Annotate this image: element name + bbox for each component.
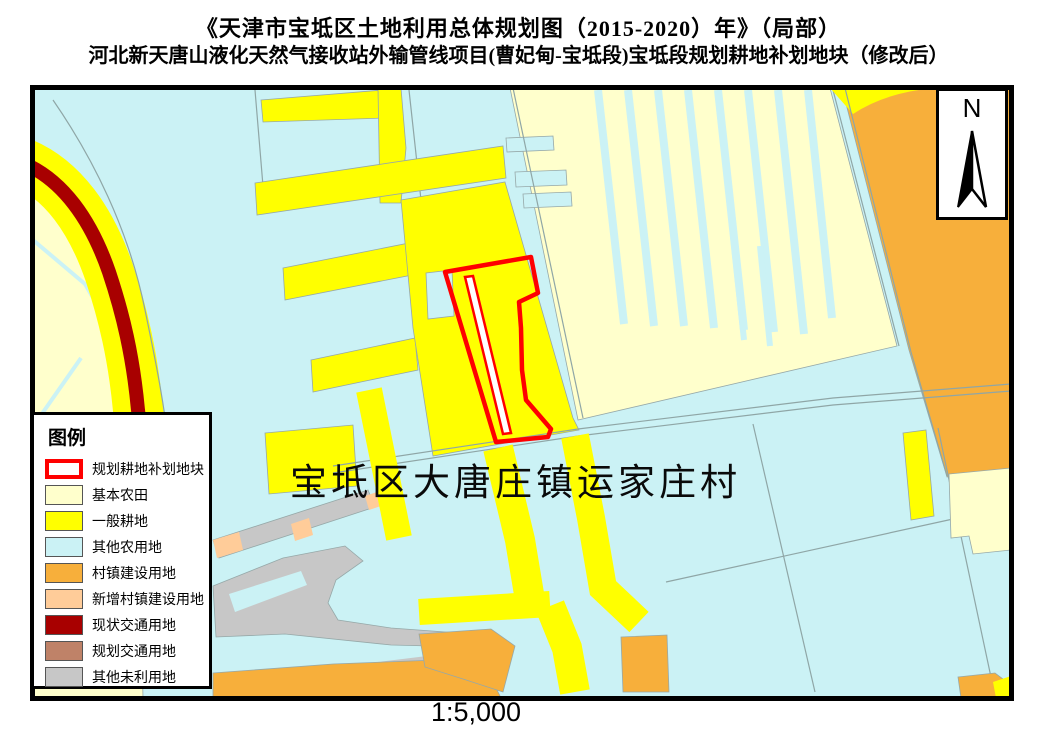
map-title-line2: 河北新天唐山液化天然气接收站外输管线项目(曹妃甸-宝坻段)宝坻段规划耕地补划地块… bbox=[0, 44, 1037, 68]
legend-swatch bbox=[45, 589, 83, 609]
legend-item: 现状交通用地 bbox=[34, 612, 209, 638]
legend-swatch bbox=[45, 485, 83, 505]
map-sheet: 《天津市宝坻区土地利用总体规划图（2015-2020）年》（局部） 河北新天唐山… bbox=[0, 0, 1037, 733]
legend-item-label: 规划交通用地 bbox=[92, 641, 176, 661]
legend-swatch bbox=[45, 511, 83, 531]
map-title-line1: 《天津市宝坻区土地利用总体规划图（2015-2020）年》（局部） bbox=[0, 16, 1037, 42]
legend-item: 一般耕地 bbox=[34, 508, 209, 534]
legend-item-label: 新增村镇建设用地 bbox=[92, 589, 204, 609]
legend-item-label: 村镇建设用地 bbox=[92, 563, 176, 583]
scale-text: 1:5,000 bbox=[0, 697, 952, 728]
legend-rows: 规划耕地补划地块 基本农田 一般耕地 其他农用地 村镇建设用地 新增村镇建设用地… bbox=[34, 456, 209, 690]
legend-item-label: 一般耕地 bbox=[92, 511, 148, 531]
legend-swatch bbox=[45, 459, 83, 479]
north-arrow-box: N bbox=[936, 88, 1008, 220]
legend-item: 村镇建设用地 bbox=[34, 560, 209, 586]
legend-item: 规划交通用地 bbox=[34, 638, 209, 664]
legend-item: 其他农用地 bbox=[34, 534, 209, 560]
legend: 图例 规划耕地补划地块 基本农田 一般耕地 其他农用地 村镇建设用地 新增村镇建… bbox=[31, 412, 212, 689]
legend-item-label: 基本农田 bbox=[92, 485, 148, 505]
legend-item-label: 现状交通用地 bbox=[92, 615, 176, 635]
legend-swatch bbox=[45, 667, 83, 687]
legend-item: 基本农田 bbox=[34, 482, 209, 508]
legend-item: 其他未利用地 bbox=[34, 664, 209, 690]
legend-swatch bbox=[45, 537, 83, 557]
legend-item: 新增村镇建设用地 bbox=[34, 586, 209, 612]
legend-item: 规划耕地补划地块 bbox=[34, 456, 209, 482]
legend-swatch bbox=[45, 615, 83, 635]
village-name-label: 宝坻区大唐庄镇运家庄村 bbox=[290, 452, 741, 506]
legend-title: 图例 bbox=[48, 423, 209, 450]
north-arrow-icon bbox=[939, 91, 1005, 217]
legend-item-label: 其他农用地 bbox=[92, 537, 162, 557]
legend-swatch bbox=[45, 641, 83, 661]
legend-item-label: 规划耕地补划地块 bbox=[92, 459, 204, 479]
legend-item-label: 其他未利用地 bbox=[92, 667, 176, 687]
legend-swatch bbox=[45, 563, 83, 583]
